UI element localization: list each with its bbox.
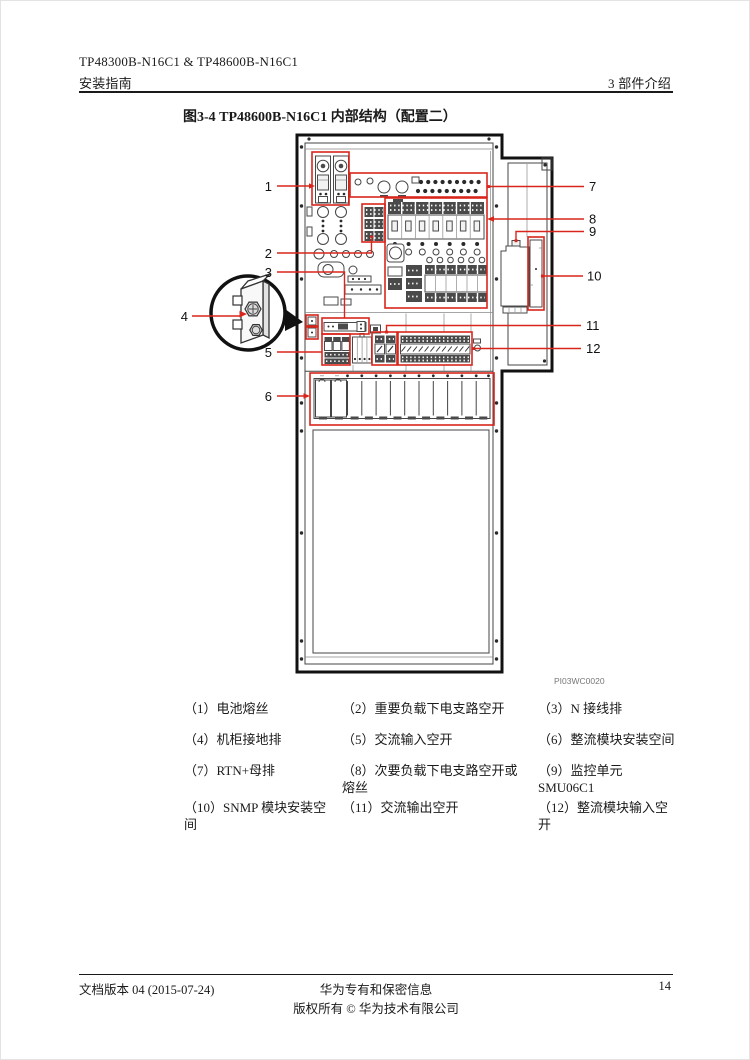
- callout-number-5: 5: [265, 345, 272, 360]
- legend-item-10: （10）SNMP 模块安装空 间: [184, 800, 339, 833]
- figure-title: 图3-4 TP48600B-N16C1 内部结构（配置二）: [183, 106, 457, 126]
- callout-number-1: 1: [265, 179, 272, 194]
- footer-copyright: 版权所有 © 华为技术有限公司: [1, 998, 750, 1017]
- legend-item-1: （1）电池熔丝: [184, 701, 334, 718]
- callout-number-9: 9: [589, 224, 596, 239]
- callout-number-6: 6: [265, 389, 272, 404]
- ground-terminal-magnifier: [211, 274, 303, 350]
- monitoring-unit: [501, 240, 542, 313]
- legend-item-11: （11）交流输出空开: [342, 800, 532, 817]
- header-chapter: 3 部件介绍: [608, 73, 671, 92]
- cabinet-diagram: 1 2 3 4 5 6 7 8 9 10 11 12 PI03WC0020: [121, 126, 681, 696]
- callout-number-11: 11: [586, 318, 600, 333]
- legend-item-8: （8）次要负载下电支路空开或 熔丝: [342, 763, 537, 796]
- footer-confidential: 华为专有和保密信息: [1, 979, 750, 998]
- callout-number-10: 10: [587, 269, 601, 284]
- callout-number-3: 3: [265, 265, 272, 280]
- legend-item-12: （12）整流模块输入空 开: [538, 800, 678, 833]
- figure-image-code: PI03WC0020: [554, 676, 605, 686]
- legend-item-3: （3）N 接线排: [538, 701, 678, 718]
- legend-item-4: （4）机柜接地排: [184, 732, 334, 749]
- footer-page-number: 14: [659, 979, 672, 994]
- header-product-models: TP48300B-N16C1 & TP48600B-N16C1: [79, 54, 298, 70]
- legend-item-9: （9）监控单元 SMU06C1: [538, 763, 678, 796]
- callout-number-12: 12: [586, 341, 600, 356]
- document-page: { "header": { "line1": "TP48300B-N16C1 &…: [0, 0, 750, 1060]
- header-doc-type: 安装指南: [79, 73, 132, 92]
- rectifier-input-breakers: [401, 336, 481, 363]
- ac-input-breakers: [325, 337, 350, 364]
- footer-rule: [79, 974, 673, 975]
- legend-item-2: （2）重要负载下电支路空开: [342, 701, 532, 718]
- header-rule: [79, 91, 673, 93]
- callout-number-4: 4: [181, 309, 188, 324]
- legend-item-7: （7）RTN+母排: [184, 763, 334, 780]
- terminal-connector-block: [353, 334, 372, 364]
- legend-item-5: （5）交流输入空开: [342, 732, 532, 749]
- callout-number-2: 2: [265, 246, 272, 261]
- callout-number-7: 7: [589, 179, 596, 194]
- legend-item-6: （6）整流模块安装空间: [538, 732, 678, 749]
